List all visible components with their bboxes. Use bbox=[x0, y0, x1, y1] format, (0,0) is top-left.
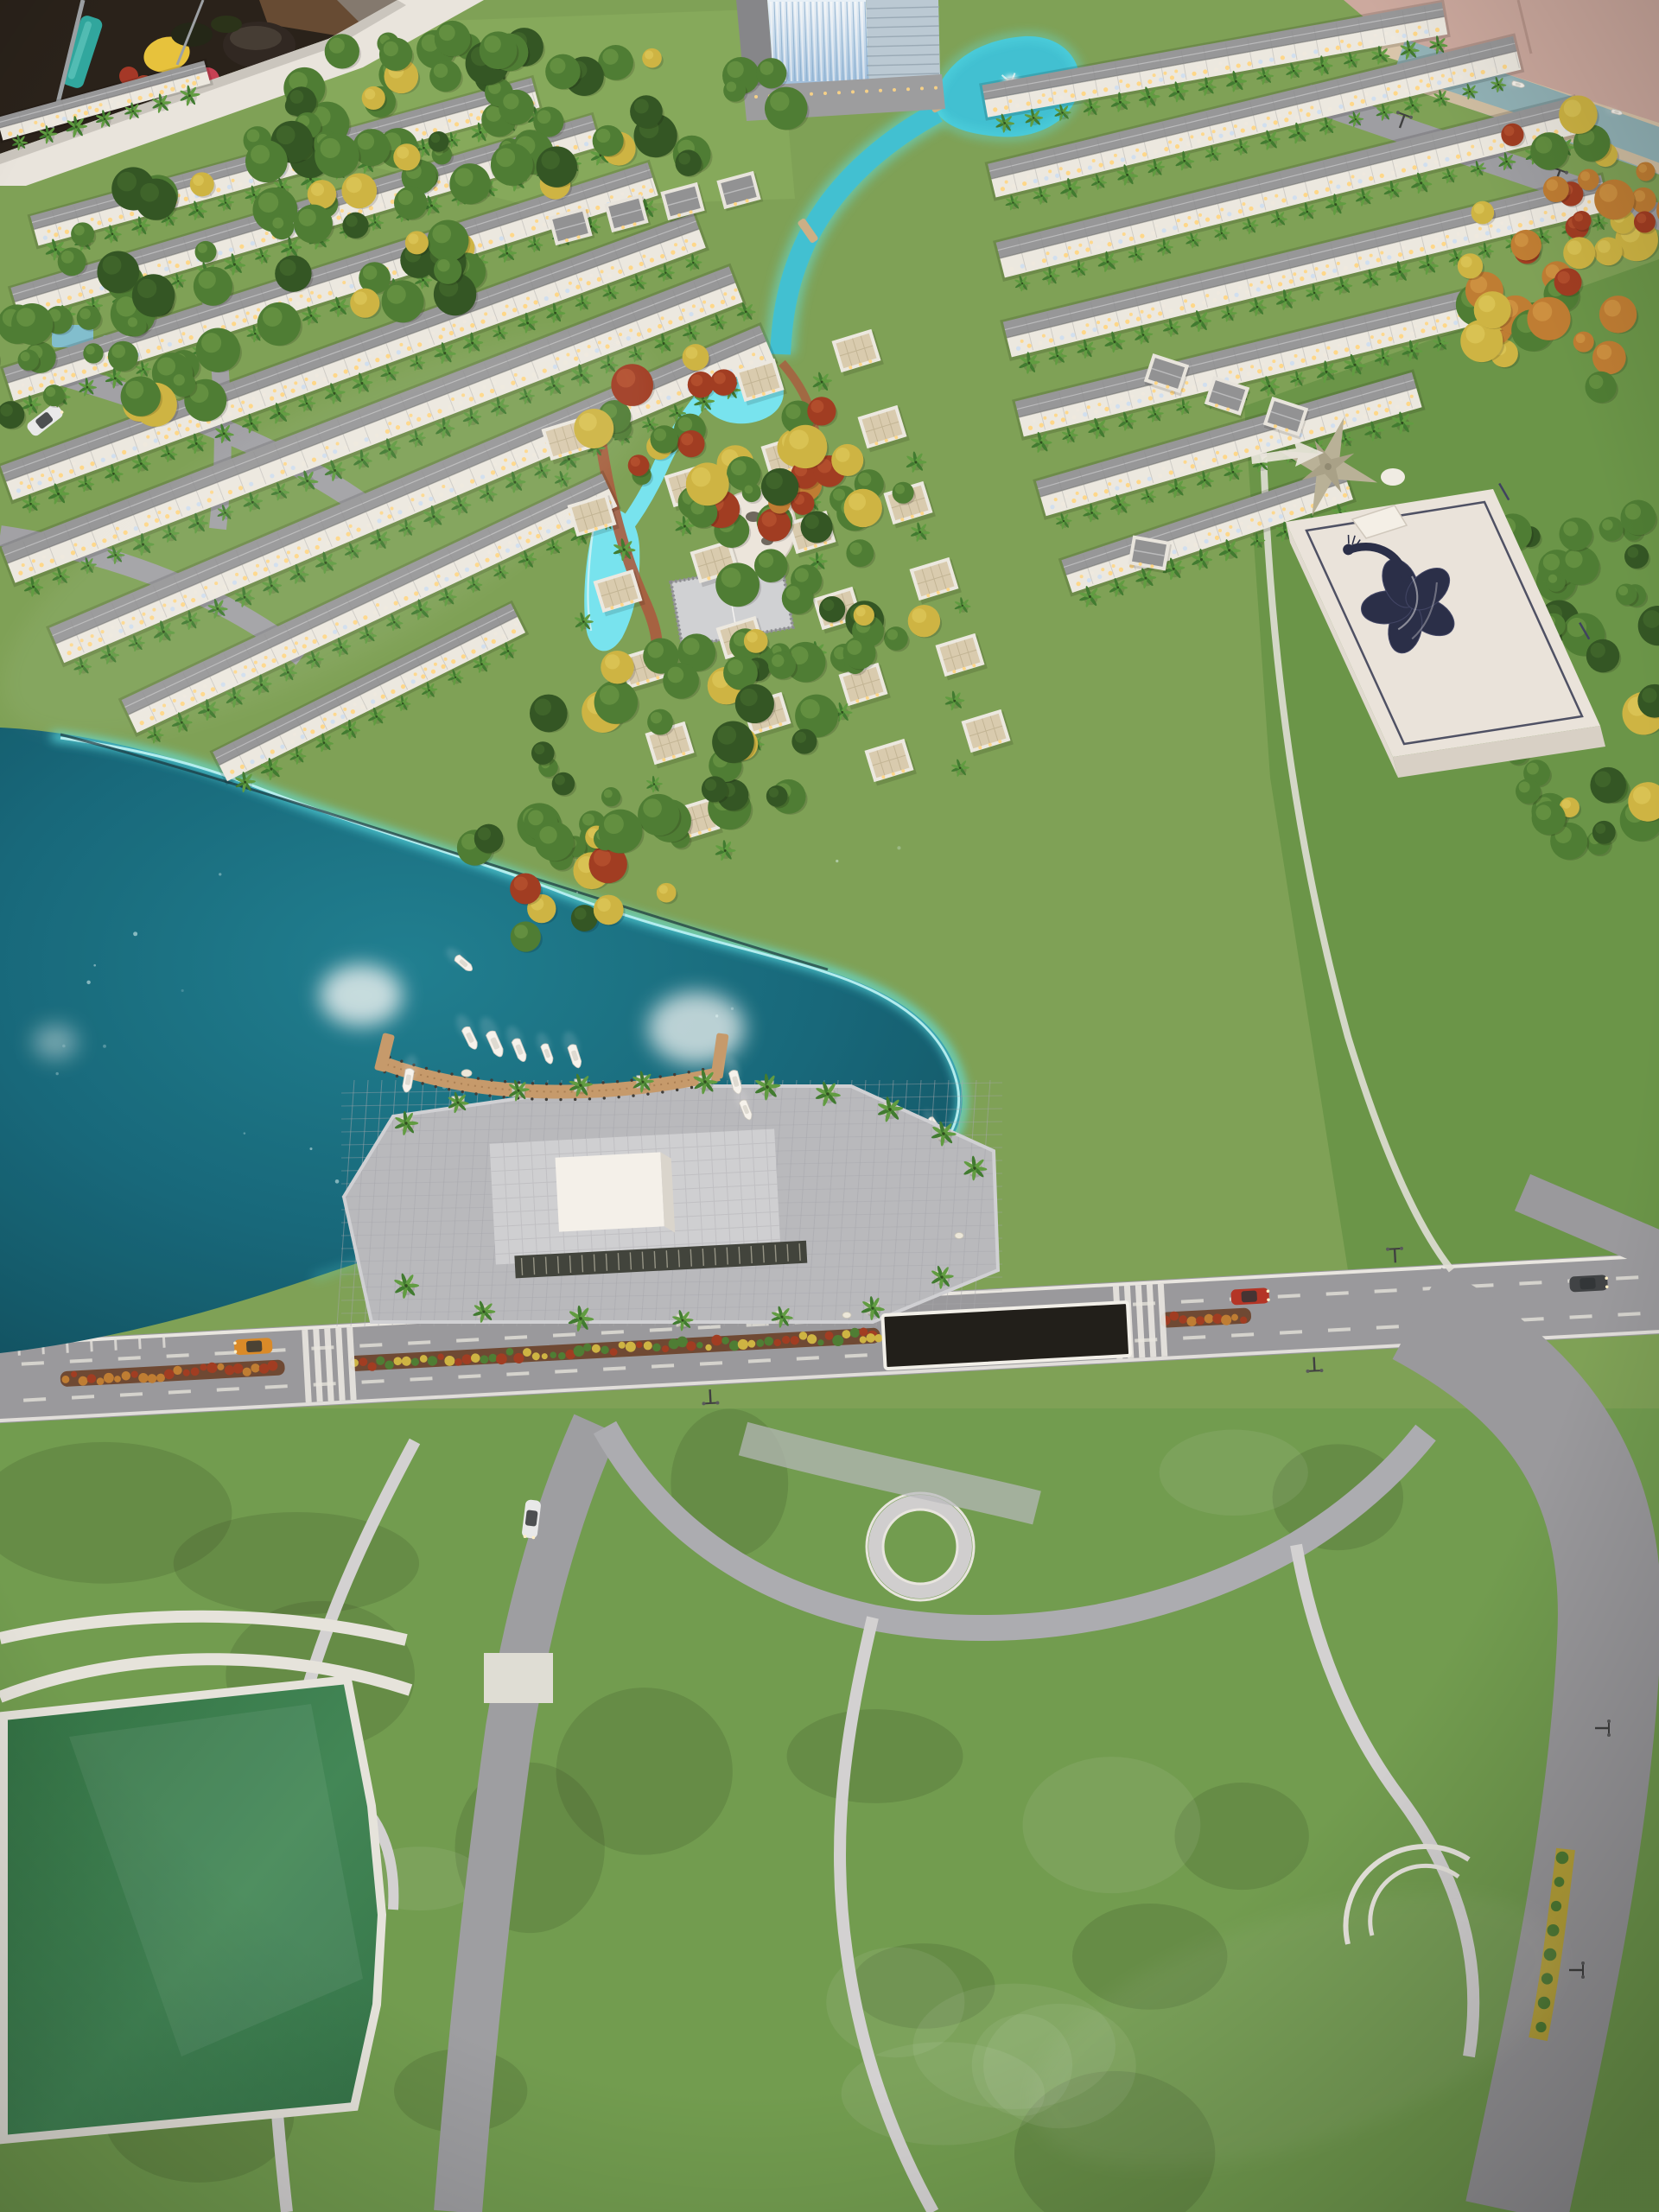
scene-svg bbox=[0, 0, 1659, 2212]
scale-model-photo bbox=[0, 0, 1659, 2212]
